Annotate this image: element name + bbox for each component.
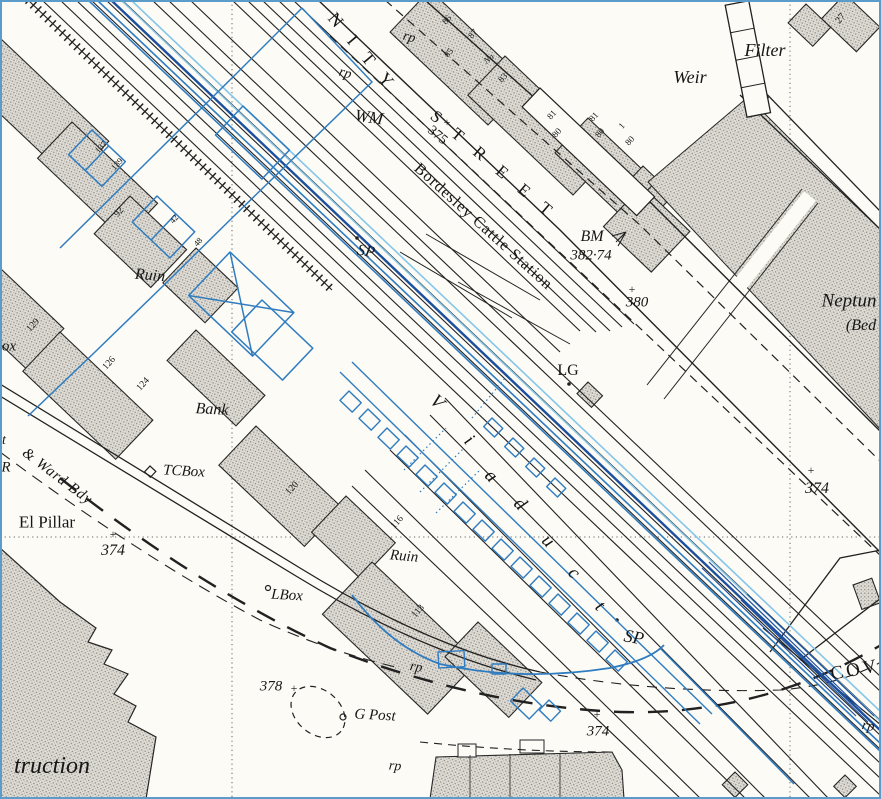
map-linework xyxy=(0,0,881,799)
map-canvas: N I T YrprpWMS T R E E T375+Bordesley Ca… xyxy=(0,0,881,799)
